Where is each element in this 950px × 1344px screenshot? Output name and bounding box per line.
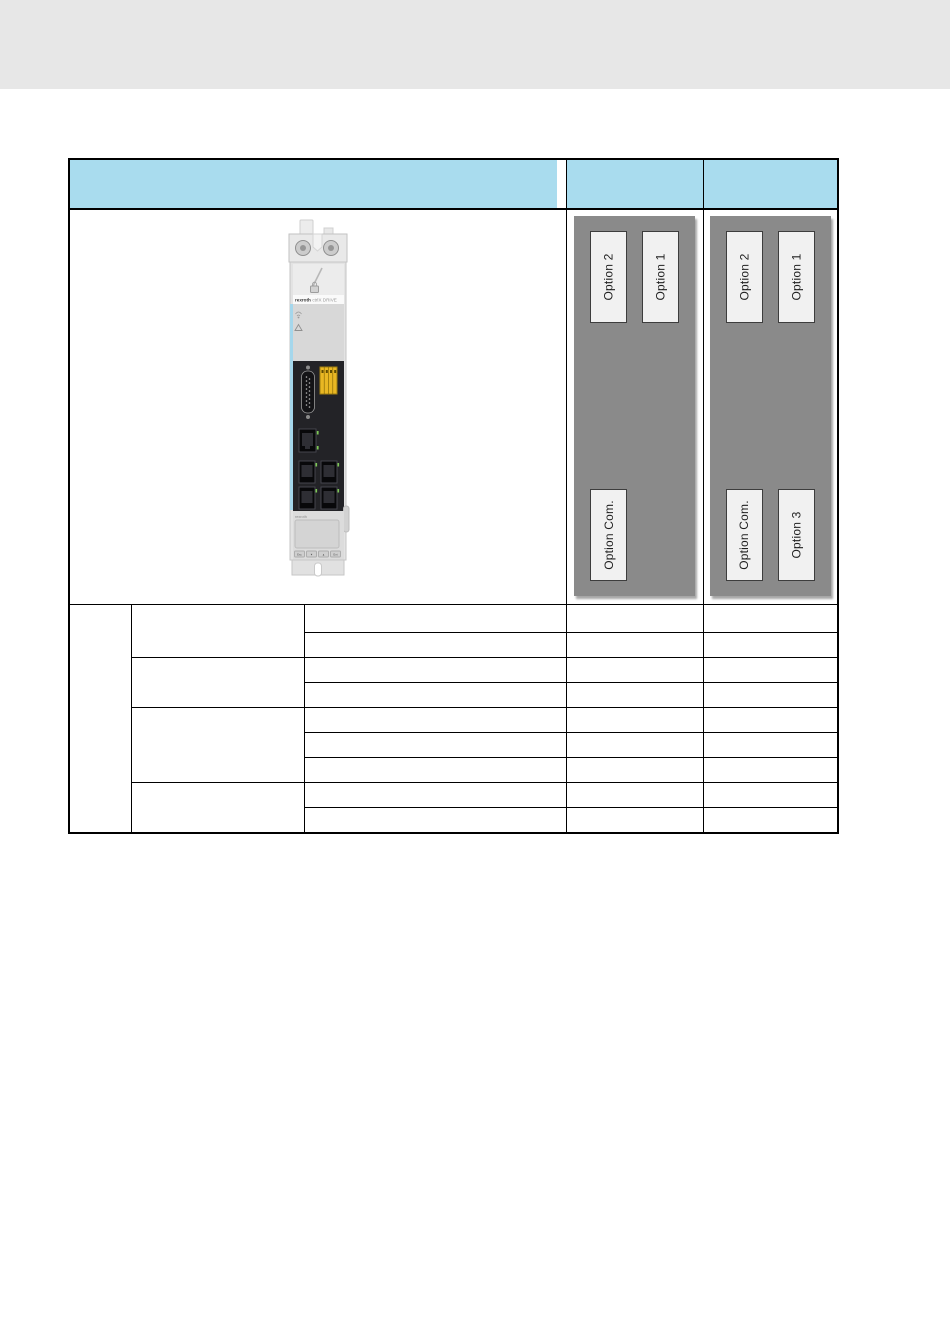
option-slot-label: Option 2 [602,254,616,301]
option-slot: Option Com. [590,489,627,581]
ethernet-port [299,429,319,452]
table-cell [703,733,838,758]
header-cell [566,159,703,209]
option-slot: Option 3 [778,489,815,581]
table-cell [566,605,703,633]
table-cell [566,658,703,683]
table-cell [131,708,304,783]
table-cell [703,783,838,808]
table-cell [131,658,304,708]
table-cell [566,758,703,783]
table-row [69,658,838,683]
table-image-row: rexrothctrlX DRIVE [69,209,838,605]
table-cell [304,808,566,834]
table-row [69,708,838,733]
option-slot-label: Option 3 [789,512,803,559]
option-slot: Option 1 [642,231,679,323]
option-slot-label: Option 2 [737,254,751,301]
option-slot-label: Option 1 [789,254,803,301]
table-cell [304,633,566,658]
screw-icon [306,366,310,370]
table-cell [304,605,566,633]
option-panel: Option 2Option 1Option Com. [574,216,695,596]
option-slot-label: Option 1 [654,254,668,301]
bottom-brand-label: rexroth [295,515,307,519]
option-panel: Option 2Option 1Option Com.Option 3 [710,216,831,596]
brand-label: rexrothctrlX DRIVE [295,298,337,303]
panel-cell: Option 2Option 1Option Com. [566,209,703,605]
spec-table: rexrothctrlX DRIVE [68,158,839,834]
table-cell [703,605,838,633]
table-cell [703,758,838,783]
table-cell [304,758,566,783]
table-cell [566,633,703,658]
table-cell [703,658,838,683]
ethernet-port [321,487,339,509]
device-cell: rexrothctrlX DRIVE [69,209,566,605]
table-cell [304,733,566,758]
ethernet-port [299,487,317,509]
table-header-row [69,159,838,209]
dsub-connector [301,371,314,413]
table-cell [304,683,566,708]
table-cell [703,708,838,733]
option-slot-label: Option Com. [737,500,751,570]
option-slot: Option 2 [726,231,763,323]
table-cell [131,605,304,658]
drive-device-image: rexrothctrlX DRIVE [286,218,350,581]
table-cell [566,783,703,808]
table-cell [304,708,566,733]
table-cell [703,633,838,658]
option-slot: Option 2 [590,231,627,323]
table-cell [566,808,703,834]
ethernet-port [299,461,317,483]
table-cell [566,683,703,708]
screw-icon [306,415,310,419]
panel-cell: Option 2Option 1Option Com.Option 3 [703,209,838,605]
table-cell [131,783,304,834]
table-cell [69,605,131,834]
option-slot: Option Com. [726,489,763,581]
svg-text:▼: ▼ [310,552,313,556]
accent-stripe [290,304,293,510]
table-cell [703,683,838,708]
option-slot: Option 1 [778,231,815,323]
header-cell-main [69,159,566,209]
svg-text:Esc: Esc [297,552,302,556]
table-cell [703,808,838,834]
table-row [69,605,838,633]
table-cell [304,658,566,683]
ethernet-port [321,461,339,483]
table-cell [304,783,566,808]
option-slot-label: Option Com. [602,500,616,570]
header-cell [703,159,838,209]
svg-text:▲: ▲ [322,552,325,556]
spec-table-body [69,605,838,834]
table-cell [566,708,703,733]
table-cell [566,733,703,758]
svg-text:Ent: Ent [333,552,337,556]
display-panel [295,520,339,548]
table-row [69,783,838,808]
document-page: rexrothctrlX DRIVE [0,0,950,1344]
top-band [0,0,950,89]
